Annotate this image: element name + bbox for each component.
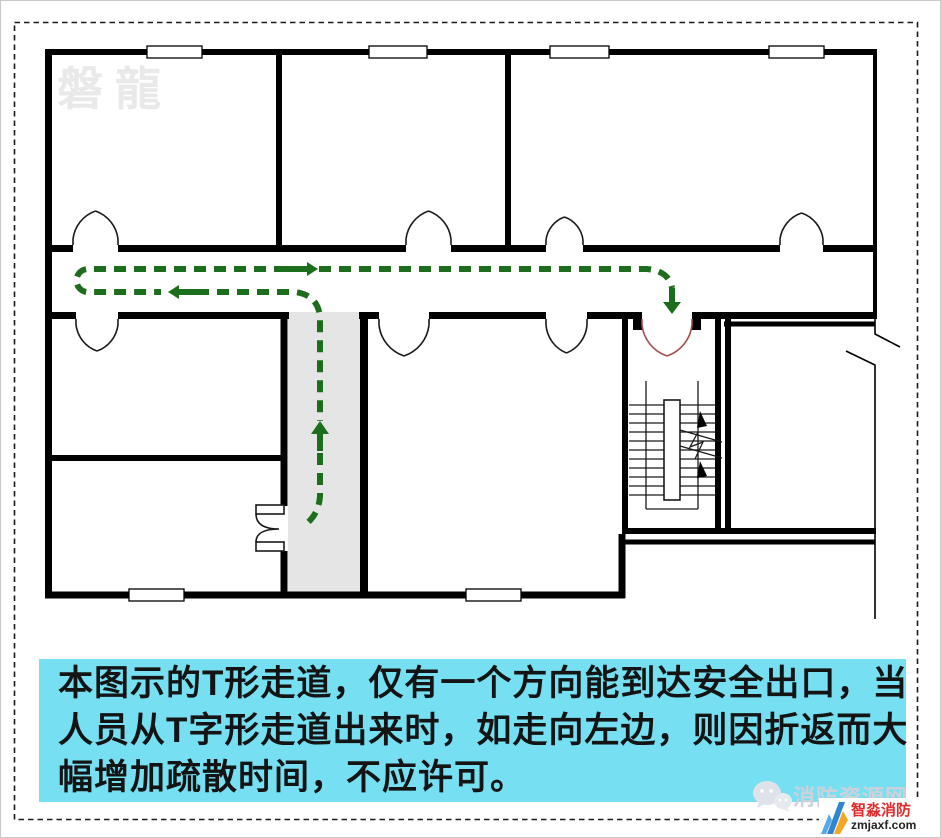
screenshot-page: 磐龍 本图示的T形走道，仅有一个方向能到达安全出口，当 人员从T字形走道出来时，… bbox=[0, 0, 941, 838]
route-top-right bbox=[319, 269, 672, 288]
staircase bbox=[629, 381, 722, 509]
route-arrow-left bbox=[168, 285, 197, 299]
route-arrow-right bbox=[286, 262, 318, 276]
break-symbol bbox=[846, 319, 900, 619]
brand-logo-icon bbox=[819, 798, 849, 836]
plan-watermark-text: 磐龍 bbox=[57, 53, 173, 119]
walls bbox=[45, 49, 900, 619]
brand-text: 智淼消防 zmjaxf.com bbox=[851, 803, 916, 832]
room-doors bbox=[73, 211, 823, 356]
corridor-shading bbox=[288, 312, 360, 595]
room-b-double-door bbox=[256, 505, 284, 551]
brand-url: zmjaxf.com bbox=[851, 819, 916, 832]
brand-logo: 智淼消防 zmjaxf.com bbox=[819, 798, 937, 836]
route-arrow-down bbox=[663, 288, 681, 314]
caption-line-1: 本图示的T形走道，仅有一个方向能到达安全出口，当 bbox=[58, 660, 906, 707]
evacuation-route bbox=[77, 269, 673, 525]
chat-bubbles-icon bbox=[751, 779, 793, 813]
route-uturn-left bbox=[77, 269, 287, 292]
caption-line-2: 人员从T字形走道出来时，如走向左边，则因折返而大 bbox=[58, 707, 906, 754]
brand-name: 智淼消防 bbox=[851, 803, 916, 819]
exit-stair-door bbox=[633, 319, 701, 356]
